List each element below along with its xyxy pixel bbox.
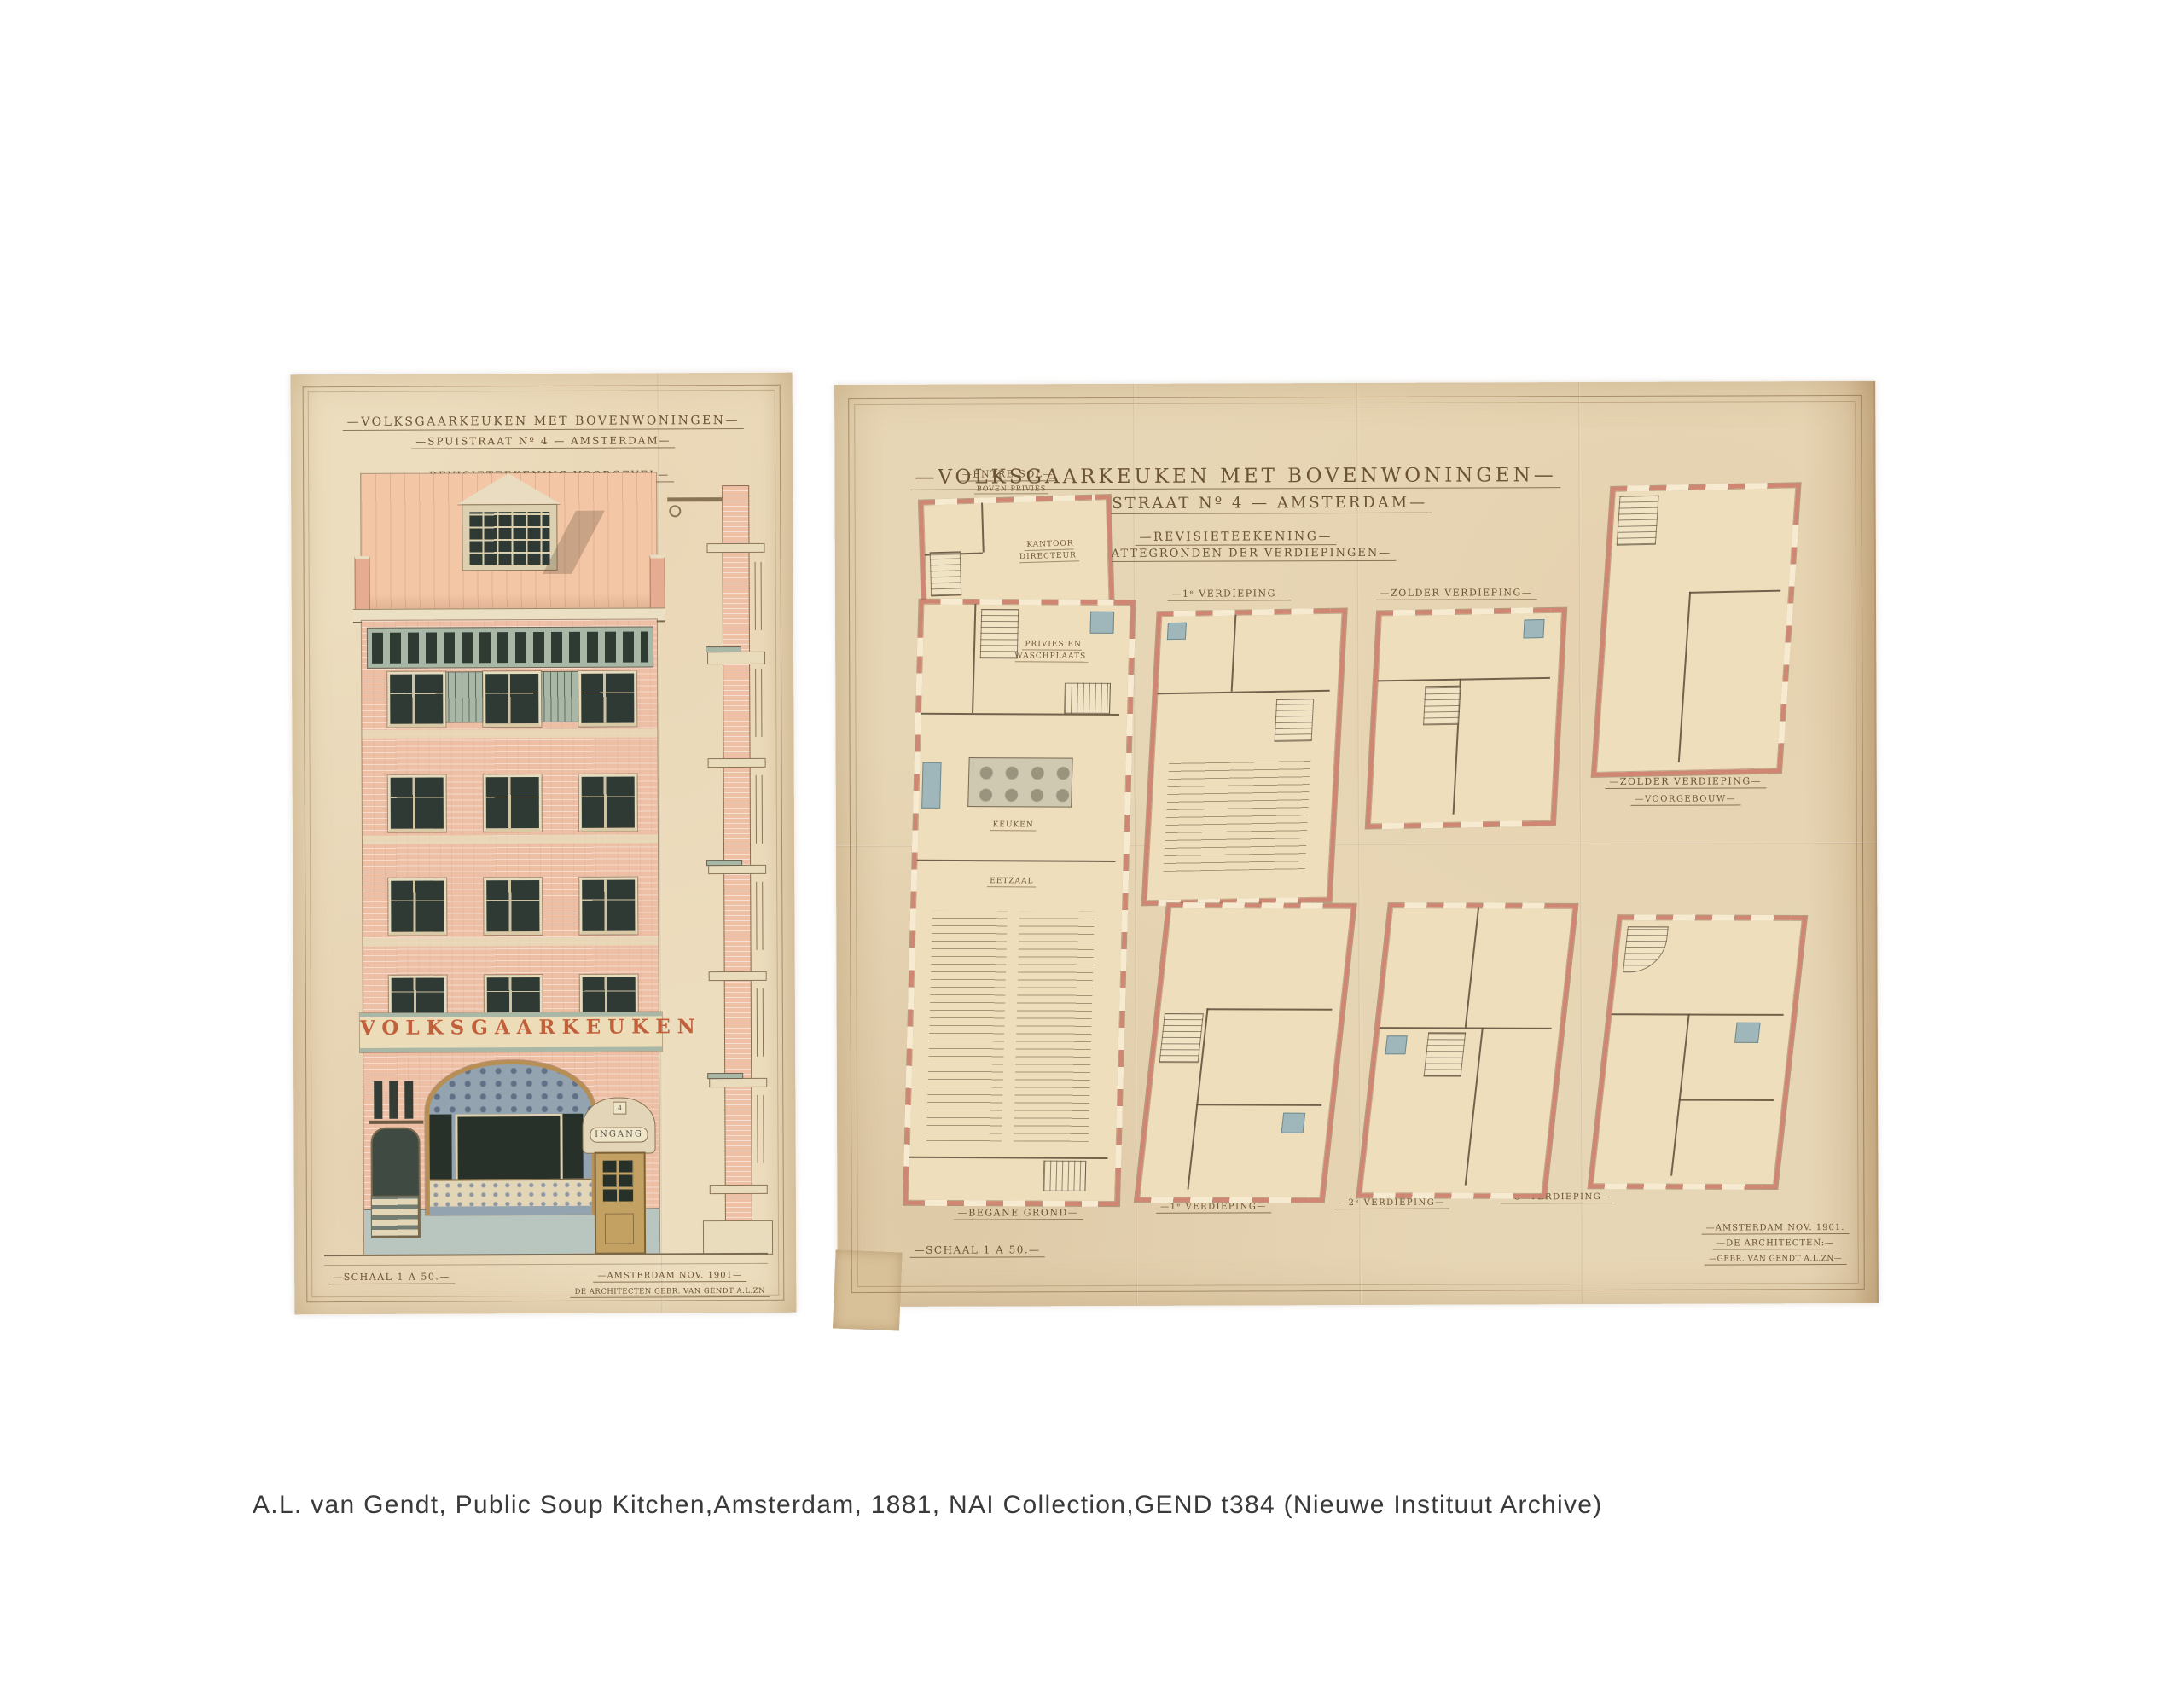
masonry-band bbox=[362, 728, 657, 739]
page-canvas: —VOLKSGAARKEUKEN MET BOVENWONINGEN— —SPU… bbox=[0, 0, 2184, 1687]
window-openings bbox=[1627, 483, 1785, 492]
signature-line2: DE ARCHITECTEN GEBR. VAN GENDT A.L.ZN bbox=[571, 1287, 770, 1298]
interior-wall bbox=[1679, 1099, 1774, 1101]
house-number: 4 bbox=[613, 1102, 626, 1115]
interior-wall bbox=[1612, 1013, 1784, 1016]
window bbox=[388, 878, 446, 935]
window-openings bbox=[1382, 820, 1540, 829]
fixture bbox=[1523, 619, 1544, 638]
section-window bbox=[756, 775, 763, 843]
torn-edge bbox=[1848, 381, 1879, 1303]
interior-wall bbox=[1157, 690, 1329, 695]
dormer-window bbox=[469, 512, 549, 565]
plans-subtitle-line2: —PLATTEGRONDEN DER VERDIEPINGEN— bbox=[1076, 547, 1396, 562]
window bbox=[389, 975, 447, 1017]
window-openings bbox=[1115, 639, 1135, 1168]
shop-window bbox=[425, 1060, 596, 1215]
label-second-floor: —2ᵉ VERDIEPING— bbox=[1334, 1198, 1449, 1209]
ornament-panel bbox=[440, 671, 485, 722]
skylight-hatch bbox=[1164, 758, 1311, 872]
dining-tables bbox=[926, 911, 1008, 1141]
window-openings bbox=[1604, 1183, 1762, 1190]
signature-line2: —DE ARCHITECTEN:— bbox=[1712, 1238, 1838, 1250]
staircase bbox=[1623, 926, 1669, 972]
window-openings bbox=[925, 1200, 1098, 1207]
fixture bbox=[1089, 612, 1114, 634]
window bbox=[579, 774, 637, 832]
ground-line-2 bbox=[324, 1263, 768, 1266]
signature-block: —AMSTERDAM NOV. 1901— DE ARCHITECTEN GEB… bbox=[567, 1267, 772, 1298]
section-drawing bbox=[655, 477, 778, 1255]
floor-slab bbox=[709, 971, 767, 981]
wall-slot bbox=[374, 1081, 382, 1119]
elevation-title-line1: —VOLKSGAARKEUKEN MET BOVENWONINGEN— bbox=[343, 414, 744, 431]
staircase bbox=[1424, 1032, 1467, 1076]
window bbox=[484, 878, 542, 935]
ornament-panel bbox=[536, 671, 580, 722]
staircase bbox=[1617, 496, 1659, 546]
staircase bbox=[1043, 1161, 1086, 1191]
room-label-eetzaal: EETZAAL bbox=[987, 875, 1037, 888]
elevation-title-line2: —SPUISTRAAT Nº 4 — AMSTERDAM— bbox=[411, 434, 676, 449]
label-zolder-voorgebouw-2: —VOORGEBOUW— bbox=[1630, 794, 1740, 805]
label-entresol-sub: BOVEN PRIVIES bbox=[974, 484, 1048, 494]
plan-zolder-voorgebouw bbox=[1592, 483, 1801, 777]
window-openings bbox=[1182, 902, 1340, 909]
signature-line3: —GEBR. VAN GENDT A.L.ZN— bbox=[1705, 1255, 1846, 1266]
signature-line1: —AMSTERDAM NOV. 1901— bbox=[593, 1271, 746, 1283]
facade-drawing: VOLKSGAARKEUKEN 4 INGANG bbox=[361, 472, 659, 1255]
section-window bbox=[757, 988, 764, 1057]
room-label-privies: PRIVIES EN WASCHPLAATS bbox=[1005, 638, 1100, 663]
floor-slab bbox=[708, 865, 766, 874]
window-openings bbox=[1404, 902, 1562, 909]
interior-wall bbox=[1465, 907, 1479, 1027]
label-first-floor-bottom: —1ᵉ VERDIEPING— bbox=[1156, 1202, 1271, 1213]
window-openings bbox=[940, 599, 1113, 606]
transom-panes bbox=[372, 631, 648, 663]
shop-window-center-pane bbox=[455, 1114, 562, 1185]
section-window bbox=[757, 1095, 764, 1163]
plan-second-floor bbox=[1356, 903, 1577, 1198]
interior-wall bbox=[1380, 1027, 1552, 1029]
entrance-pediment: 4 INGANG bbox=[582, 1097, 655, 1153]
window bbox=[483, 671, 541, 727]
window bbox=[580, 975, 638, 1017]
window bbox=[485, 975, 543, 1017]
label-begane-grond: —BEGANE GROND— bbox=[954, 1207, 1083, 1220]
window-openings bbox=[1778, 513, 1799, 743]
window-openings bbox=[903, 638, 923, 1167]
interior-wall bbox=[1465, 1028, 1484, 1186]
entrance-door bbox=[595, 1151, 647, 1254]
fixture bbox=[1281, 1113, 1306, 1133]
plan-zolder-rear bbox=[1366, 608, 1567, 829]
cornice-cap bbox=[706, 646, 741, 652]
plan-first-floor-front bbox=[1135, 903, 1356, 1203]
label-zolder-top: —ZOLDER VERDIEPING— bbox=[1376, 587, 1537, 600]
signature-block: —AMSTERDAM NOV. 1901. —DE ARCHITECTEN:— … bbox=[1701, 1219, 1850, 1266]
masonry-band bbox=[363, 834, 658, 844]
floor-slab bbox=[709, 1078, 767, 1087]
interior-wall bbox=[1678, 592, 1691, 762]
fixture bbox=[1385, 1035, 1407, 1054]
foundation-block bbox=[703, 1220, 773, 1255]
plan-begane-grond: PRIVIES EN WASCHPLAATS KEUKEN EETZAAL bbox=[903, 600, 1136, 1206]
room-label-kantoor: KANTOOR DIRECTEUR bbox=[1006, 537, 1092, 565]
hoist-beam bbox=[667, 497, 723, 501]
label-first-floor-top: —1ᵉ VERDIEPING— bbox=[1168, 588, 1292, 601]
floor-slab bbox=[708, 758, 766, 768]
window bbox=[579, 878, 637, 935]
staircase bbox=[1064, 683, 1111, 714]
masonry-band bbox=[363, 936, 658, 947]
shop-window-side-pane bbox=[561, 1114, 583, 1179]
entrance-door-panel bbox=[605, 1214, 634, 1244]
ornament-band bbox=[430, 1179, 592, 1207]
entrance-steps bbox=[371, 1196, 419, 1237]
doorway-canopy bbox=[369, 1121, 423, 1124]
cornice-cap bbox=[706, 860, 742, 866]
floor-slab bbox=[707, 652, 765, 664]
fixture bbox=[1167, 623, 1187, 640]
interior-wall bbox=[1196, 1104, 1321, 1106]
window-openings bbox=[1634, 914, 1792, 921]
window bbox=[578, 671, 636, 727]
window-openings bbox=[935, 495, 1095, 506]
room-label-keuken: KEUKEN bbox=[990, 819, 1036, 832]
interior-wall bbox=[972, 604, 976, 713]
floor-slab bbox=[706, 543, 764, 553]
name-banner-text: VOLKSGAARKEUKEN bbox=[360, 1016, 662, 1040]
wall-slot bbox=[389, 1081, 398, 1119]
dormer bbox=[462, 504, 557, 571]
scale-label: —SCHAAL 1 A 50.— bbox=[910, 1244, 1045, 1258]
elevation-sheet: —VOLKSGAARKEUKEN MET BOVENWONINGEN— —SPU… bbox=[291, 373, 797, 1315]
staircase bbox=[1423, 686, 1461, 726]
plans-subtitle-line1: —REVISIETEEKENING— bbox=[1136, 530, 1337, 546]
section-window bbox=[755, 669, 762, 737]
paper-flap bbox=[833, 1249, 903, 1330]
kitchen-stove bbox=[967, 757, 1072, 808]
staircase bbox=[930, 551, 962, 596]
interior-wall bbox=[1206, 1008, 1332, 1011]
hoist-hook bbox=[669, 505, 681, 517]
section-window bbox=[756, 882, 763, 950]
interior-wall bbox=[981, 503, 985, 553]
transom-band bbox=[367, 626, 653, 668]
section-window bbox=[755, 562, 762, 630]
interior-wall bbox=[1378, 677, 1550, 682]
staircase bbox=[1159, 1013, 1204, 1063]
stained-glass-band bbox=[429, 1064, 591, 1115]
fixture bbox=[1734, 1023, 1761, 1043]
plan-third-floor bbox=[1589, 915, 1808, 1189]
sink bbox=[921, 762, 941, 809]
staircase bbox=[1275, 699, 1315, 742]
interior-wall bbox=[1689, 590, 1780, 594]
wall-slot bbox=[404, 1081, 413, 1119]
ingang-label: INGANG bbox=[590, 1127, 648, 1142]
name-banner: VOLKSGAARKEUKEN bbox=[360, 1012, 662, 1052]
window bbox=[388, 774, 446, 832]
shop-window-side-pane bbox=[429, 1114, 451, 1179]
entrance-door-glass bbox=[603, 1161, 634, 1202]
plans-sheet: —VOLKSGAARKEUKEN MET BOVENWONINGEN— —SPU… bbox=[834, 381, 1879, 1307]
caption: A.L. van Gendt, Public Soup Kitchen,Amst… bbox=[253, 1491, 1603, 1520]
signature-line1: —AMSTERDAM NOV. 1901. bbox=[1702, 1223, 1850, 1235]
window bbox=[387, 671, 445, 727]
floor-slab bbox=[710, 1185, 768, 1194]
plan-entresol: KANTOOR DIRECTEUR bbox=[919, 495, 1114, 612]
window bbox=[484, 774, 542, 832]
plan-first-floor-rear bbox=[1142, 609, 1347, 906]
dining-tables bbox=[1014, 911, 1095, 1141]
window-openings bbox=[1393, 607, 1551, 616]
scale-label: —SCHAAL 1 A 50.— bbox=[328, 1271, 455, 1284]
chimney-left bbox=[355, 556, 370, 617]
window-openings bbox=[1373, 1192, 1531, 1199]
window-openings bbox=[1173, 608, 1331, 617]
window-openings bbox=[1151, 1197, 1309, 1203]
interior-wall bbox=[1670, 1014, 1690, 1176]
interior-wall bbox=[917, 860, 1116, 862]
label-zolder-voorgebouw-1: —ZOLDER VERDIEPING— bbox=[1605, 775, 1766, 789]
interior-wall bbox=[909, 1157, 1107, 1159]
dormer-pediment bbox=[456, 473, 561, 505]
interior-wall bbox=[1231, 615, 1237, 692]
label-entresol: —ENTRE SOL— bbox=[958, 468, 1058, 481]
cornice-cap bbox=[707, 1073, 743, 1079]
